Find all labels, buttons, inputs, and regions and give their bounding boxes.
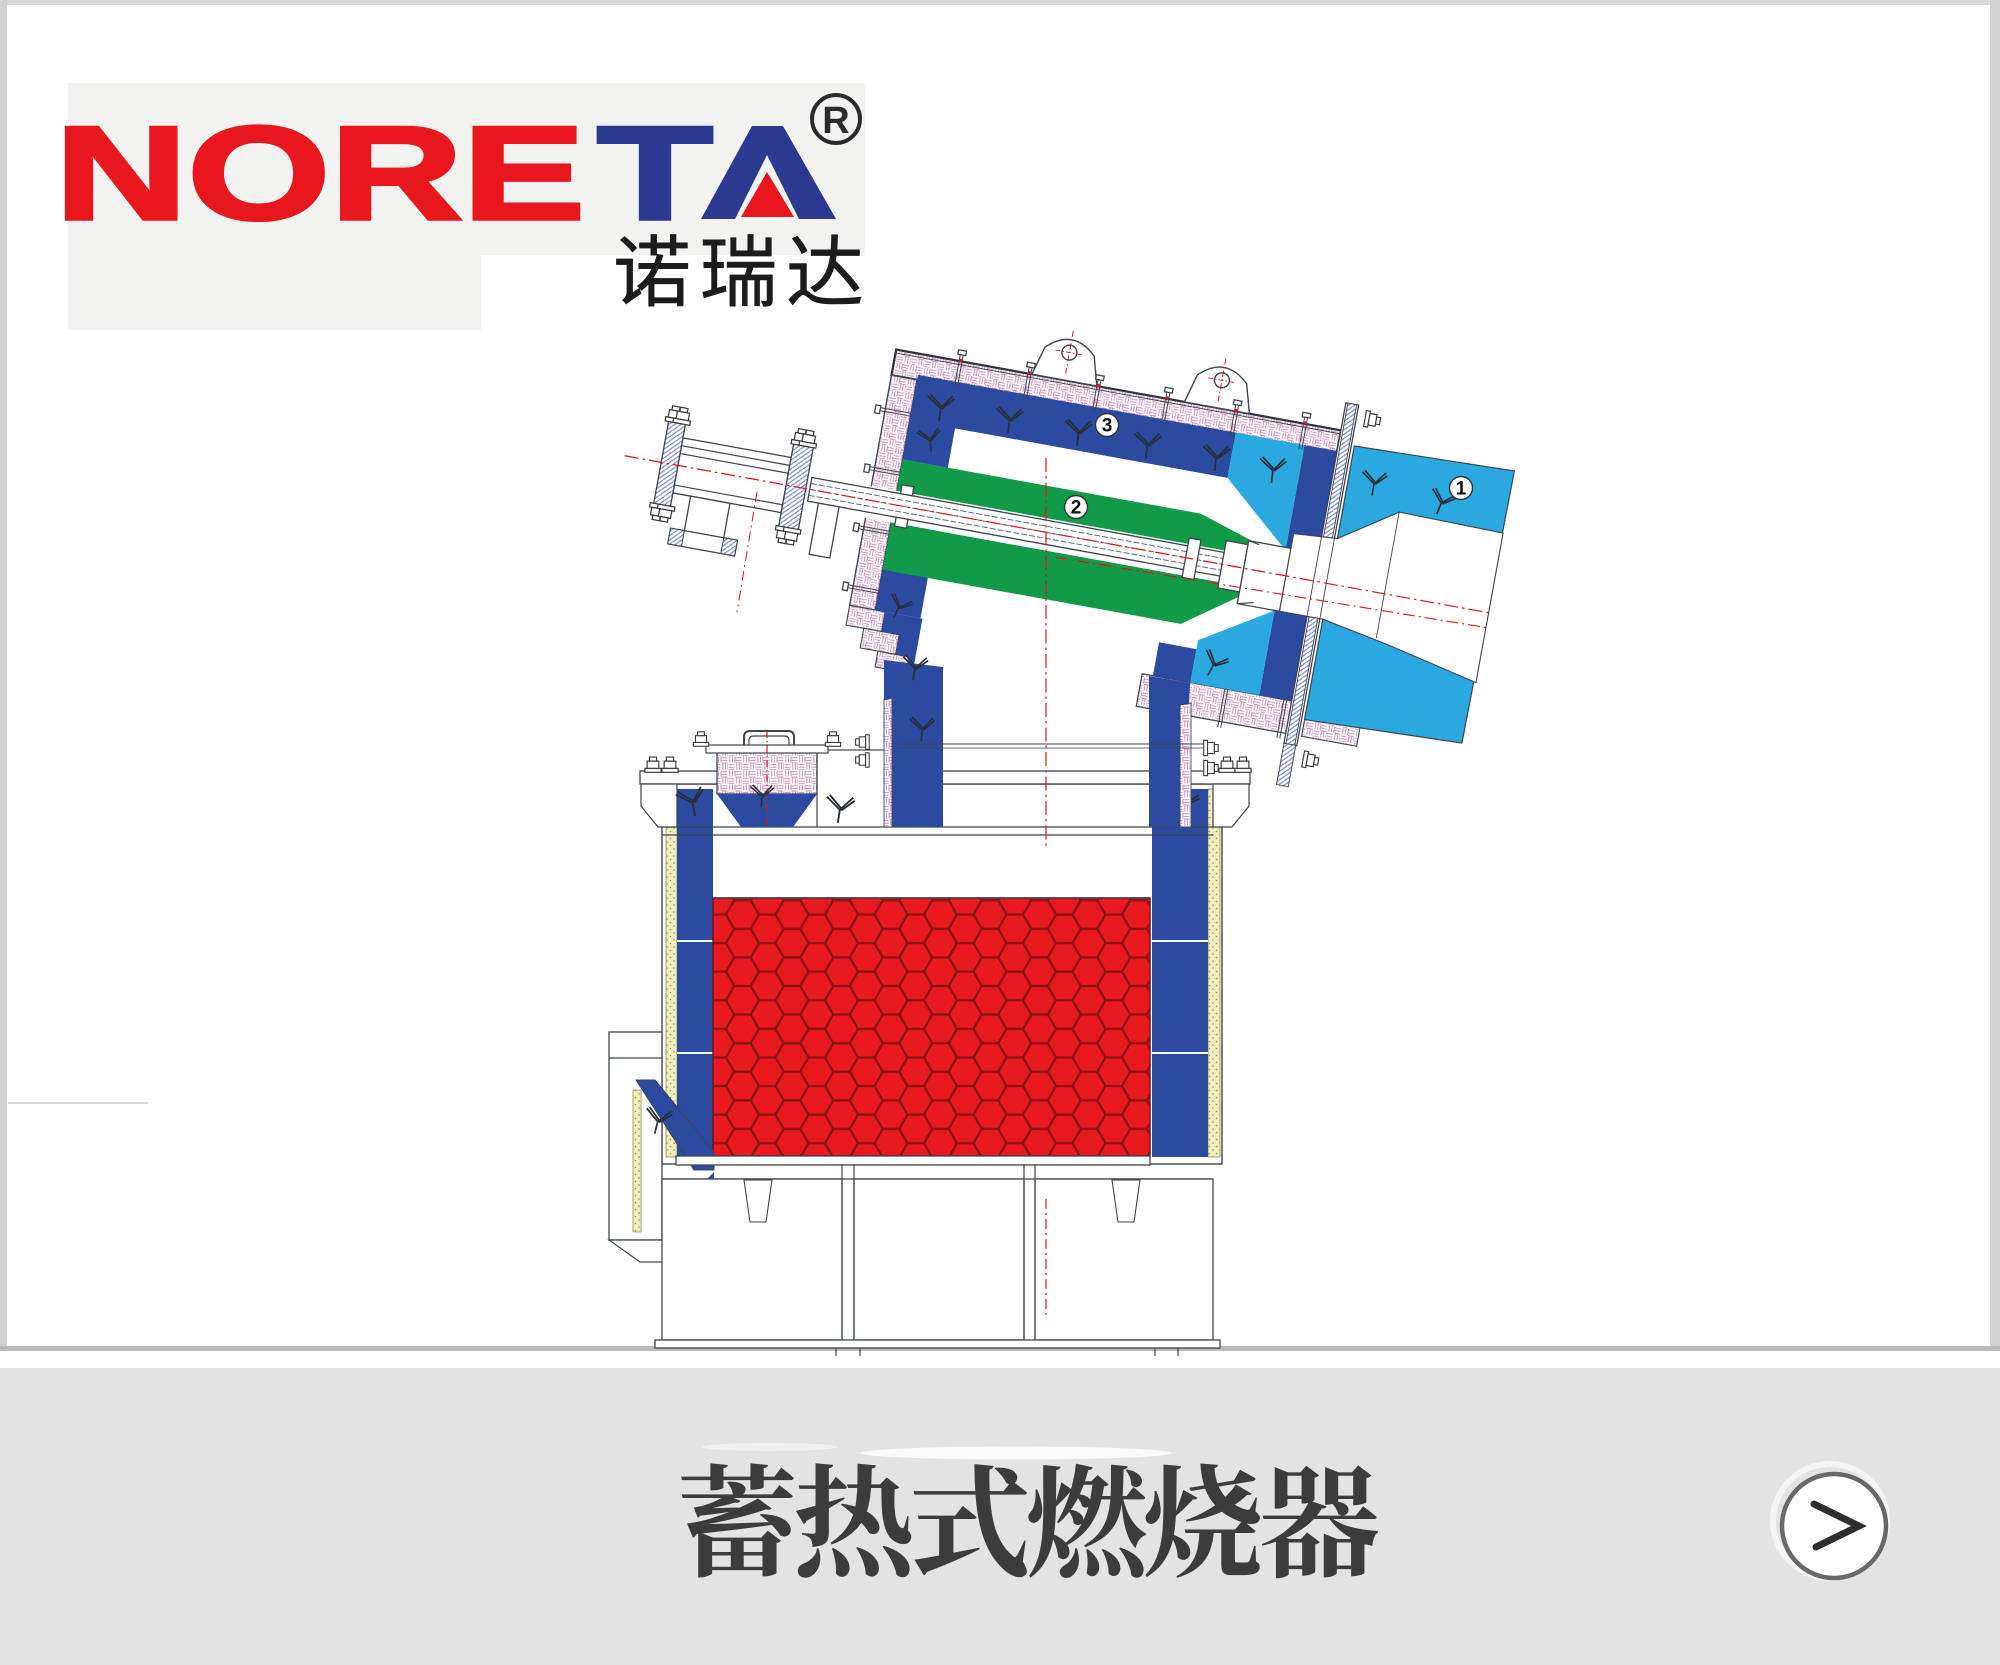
svg-text:NORE: NORE — [55, 100, 585, 248]
svg-text:T: T — [597, 100, 713, 248]
svg-text:2: 2 — [1071, 498, 1082, 519]
svg-text:1: 1 — [1456, 479, 1467, 500]
svg-text:3: 3 — [1102, 416, 1113, 437]
svg-text:R: R — [822, 100, 849, 142]
